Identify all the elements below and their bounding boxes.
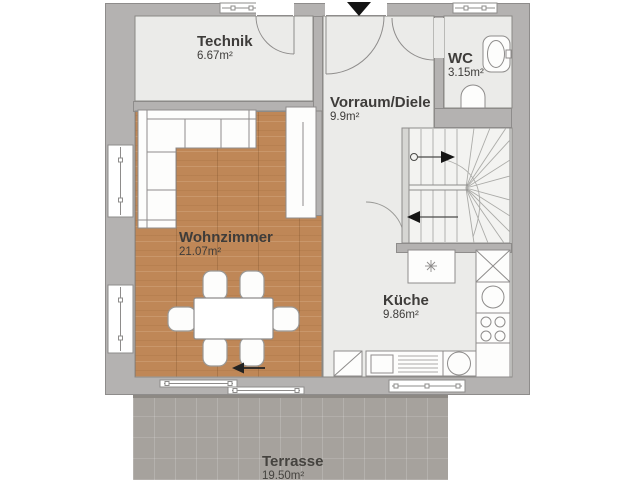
- room-name: Wohnzimmer: [179, 229, 273, 246]
- window-left-upper: [108, 145, 133, 217]
- room-name: Vorraum/Diele: [330, 94, 431, 111]
- room-area: 3.15m²: [448, 67, 484, 80]
- cooktop: [476, 313, 510, 343]
- sideboard: [286, 107, 316, 218]
- window-wc-top: [453, 3, 497, 13]
- room-name: Terrasse: [262, 453, 323, 470]
- sofa: [138, 110, 256, 228]
- dining-set: [168, 271, 299, 374]
- washing-drum-icon: [448, 352, 471, 375]
- terrace-direction-arrow-icon: [232, 363, 244, 374]
- room-area: 9.86m²: [383, 309, 429, 322]
- staircase: [402, 128, 510, 243]
- room-vorraum-label: Vorraum/Diele 9.9m²: [330, 94, 431, 124]
- dining-table: [194, 298, 273, 339]
- counter: [476, 343, 510, 377]
- room-name: Technik: [197, 33, 253, 50]
- wc-door: [392, 18, 444, 60]
- window-kueche-bottom: [389, 380, 465, 392]
- kitchen-sink-icon: [482, 286, 504, 308]
- room-area: 9.9m²: [330, 111, 431, 124]
- floor-plan: Technik 6.67m² WC 3.15m² Vorraum/Diele 9…: [0, 0, 640, 480]
- room-area: 21.07m²: [179, 246, 273, 259]
- room-area: 19.50m²: [262, 470, 323, 480]
- room-wc-label: WC 3.15m²: [448, 50, 484, 80]
- entry-door: [325, 1, 387, 74]
- room-wohnzimmer-label: Wohnzimmer 21.07m²: [179, 229, 273, 259]
- technik-door: [256, 1, 294, 54]
- room-name: WC: [448, 50, 484, 67]
- sliding-terrace-door: [160, 380, 304, 394]
- room-technik-label: Technik 6.67m²: [197, 33, 253, 63]
- counter-sink-icon: [371, 355, 393, 373]
- room-kueche-label: Küche 9.86m²: [383, 292, 429, 322]
- understairs-door-swing: [366, 202, 404, 240]
- room-terrasse-label: Terrasse 19.50m²: [262, 453, 323, 480]
- room-area: 6.67m²: [197, 50, 253, 63]
- window-left-lower: [108, 285, 133, 353]
- toilet-icon: [461, 85, 485, 108]
- room-name: Küche: [383, 292, 429, 309]
